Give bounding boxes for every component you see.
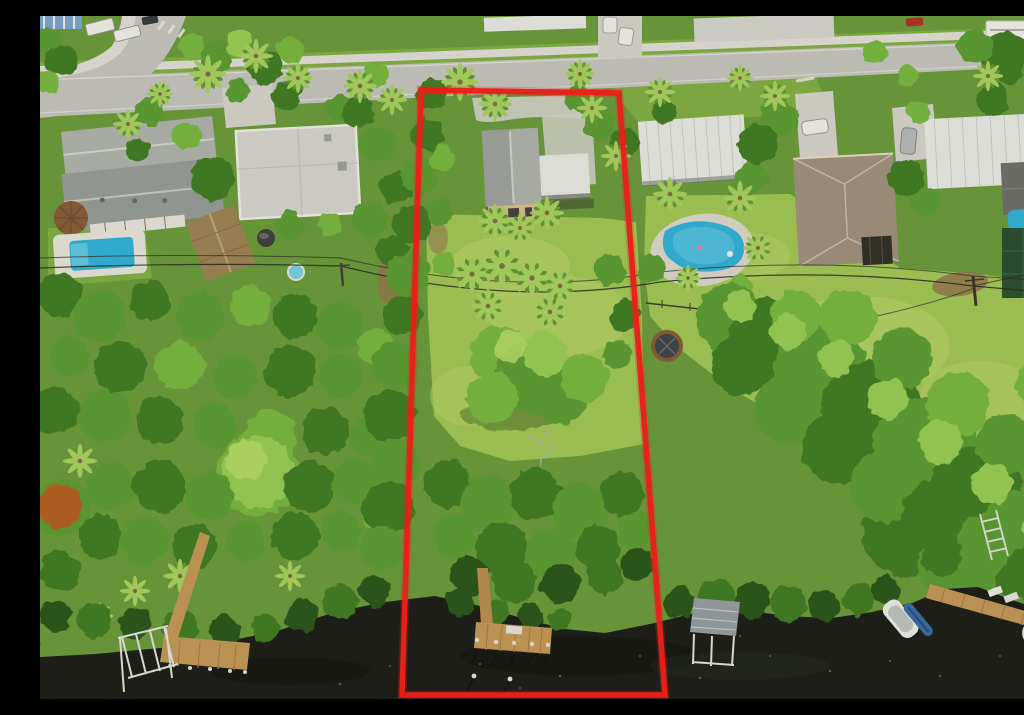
aerial-photo-canvas [40,16,1024,699]
photo-grain [40,16,1024,699]
aerial-photo [40,16,1024,699]
